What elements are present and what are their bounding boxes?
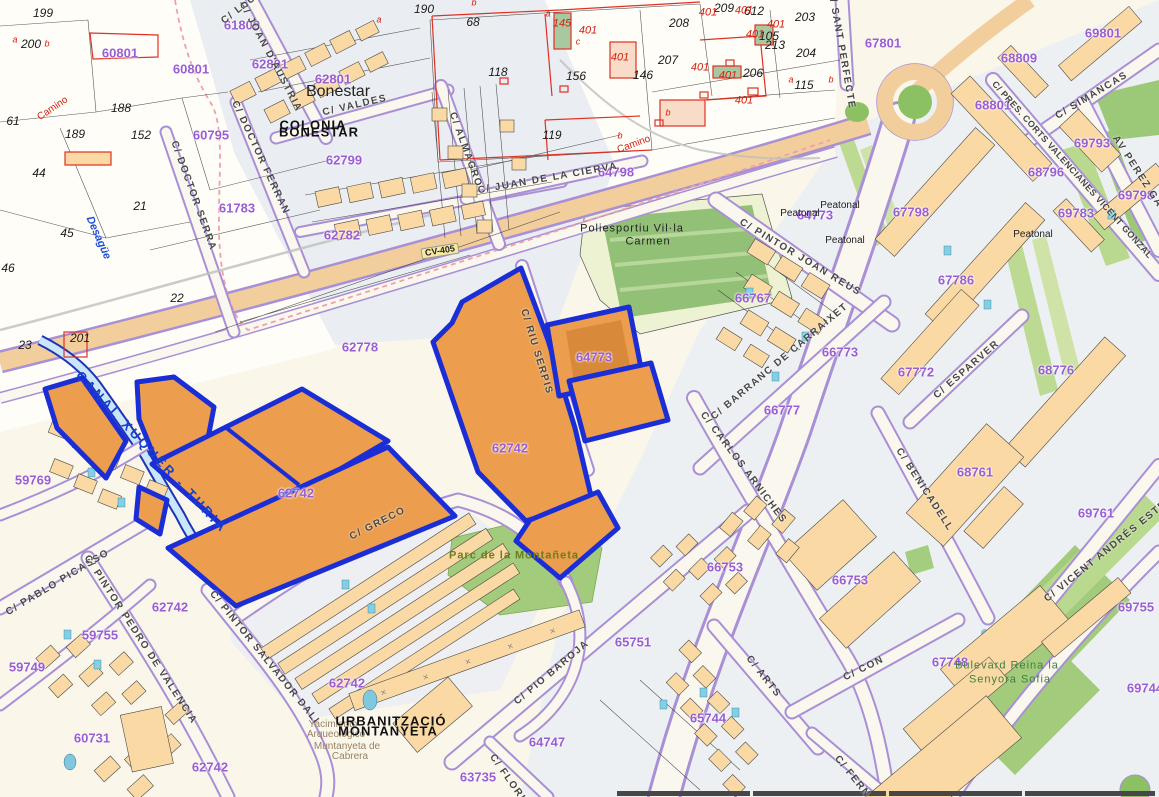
cadastral-map-canvas[interactable]: ××××× 199a200b61: [0, 0, 1159, 797]
map-base-layer: ×××××: [0, 0, 1159, 797]
scale-bar: [617, 791, 1155, 796]
